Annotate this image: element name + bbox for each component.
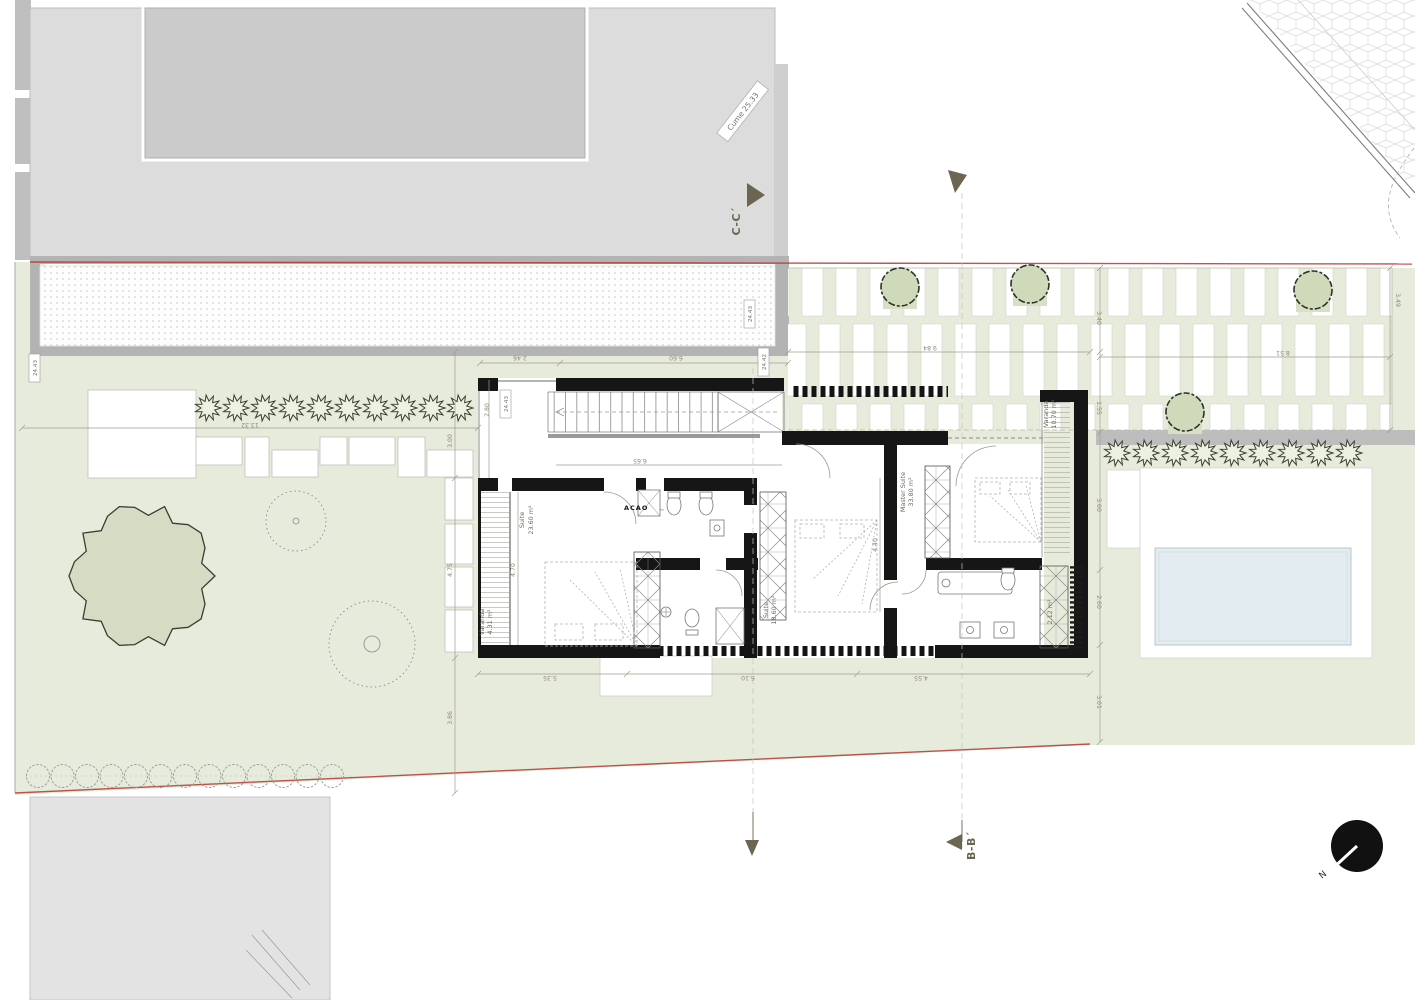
- patio-courtyard: [30, 256, 790, 356]
- room-suite1-name: Suite: [518, 512, 526, 528]
- stepping-stone: [445, 478, 473, 520]
- dim-left-4: 3.86: [447, 711, 454, 725]
- stepping-stone: [245, 437, 269, 477]
- road-band: [1242, 0, 1415, 238]
- dim-left-2: 3.00: [447, 434, 454, 448]
- dim-right-5: 3.01: [1095, 695, 1102, 709]
- dim-top-3: 9.84: [923, 344, 937, 351]
- north-label: N: [1318, 869, 1330, 881]
- room-master-name: Master Suite: [899, 472, 907, 512]
- plan-drawing: Cume 25.33: [0, 0, 1415, 1000]
- pergola-louvers-north: [790, 386, 948, 397]
- section-label-b: B-B´: [965, 831, 978, 860]
- dim-int-2: 6.65: [633, 457, 647, 464]
- level-3: 24.43: [504, 396, 510, 412]
- lower-terrace: [600, 656, 712, 696]
- stepping-stone: [445, 610, 473, 652]
- dim-right-1: 3.40: [1095, 311, 1102, 325]
- dim-top-2: 6.60: [669, 354, 683, 361]
- neighbour-building-north: [15, 0, 788, 260]
- dim-right-3: 3.60: [1095, 498, 1102, 512]
- floor-plan-canvas: Cume 25.33: [0, 0, 1415, 1000]
- louver-window-east: [1070, 566, 1083, 650]
- dim-left-3: 4.75: [447, 563, 454, 577]
- level-2: 24.43: [748, 306, 754, 322]
- dim-int-4: 4.40: [872, 538, 879, 552]
- dim-bottom-2: 6.10: [741, 674, 755, 681]
- stepping-stone: [320, 437, 347, 465]
- deck-tree: [1166, 393, 1204, 431]
- neighbour-parcel-south: [30, 797, 330, 1000]
- plan-stamp: ACAO: [624, 504, 648, 512]
- dim-bottom-3: 4.55: [914, 674, 928, 681]
- room-suite2-area: 18.60 m²: [770, 595, 778, 625]
- room-varanda1-name: Varanda: [478, 609, 486, 635]
- room-master-area: 33.80 m²: [907, 477, 915, 507]
- stepping-stone: [398, 437, 425, 477]
- room-shaft-area: 2.12 m²: [1046, 599, 1054, 624]
- north-arrow: N: [1318, 820, 1383, 881]
- room-varanda2-name: Varanda: [1042, 401, 1050, 427]
- stepping-stone: [427, 450, 473, 477]
- dim-int-3: 4.70: [510, 563, 517, 577]
- dim-left-1: 13.32: [241, 421, 259, 428]
- dim-top-1: 2.46: [513, 354, 527, 361]
- deck-tree: [1294, 271, 1332, 309]
- dim-bottom-1: 5.35: [543, 674, 557, 681]
- room-suite1-area: 23.60 m²: [527, 505, 535, 535]
- deck-tree: [881, 268, 919, 306]
- room-varanda2-area: 10.70 m²: [1050, 399, 1058, 429]
- section-label-c: C-C´: [730, 207, 743, 235]
- deck-tree: [1011, 265, 1049, 303]
- dim-right-2: 1.55: [1095, 401, 1102, 415]
- stepping-stone: [272, 450, 318, 477]
- dim-top-4: 8.51: [1276, 349, 1290, 356]
- room-varanda1-area: 4.31 m²: [486, 609, 494, 634]
- swimming-pool: [1155, 548, 1351, 645]
- dim-top-5: 3.49: [1394, 293, 1401, 307]
- pool-terrace: [1107, 468, 1372, 658]
- level-1: 24.43: [33, 360, 39, 376]
- dim-right-4: 2.60: [1095, 595, 1102, 609]
- stepping-stone: [88, 390, 196, 478]
- stepping-stone: [196, 437, 242, 465]
- stepping-stone: [445, 524, 473, 564]
- dim-int-1: 2.80: [484, 403, 491, 417]
- pergola-louvers-south: [660, 646, 935, 656]
- room-suite2-name: Suite: [762, 602, 770, 618]
- level-4: 24.42: [762, 354, 768, 370]
- stepping-stone: [349, 437, 395, 465]
